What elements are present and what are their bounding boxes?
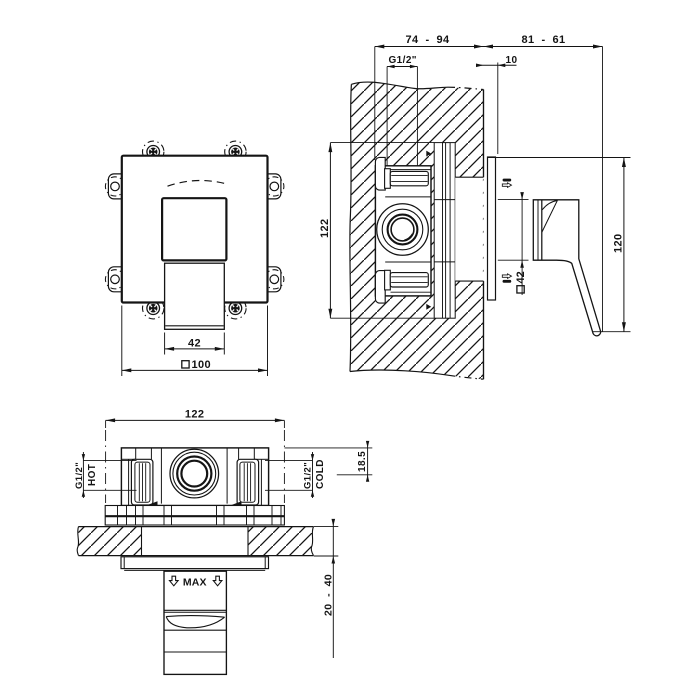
svg-text:74 - 94: 74 - 94 <box>406 34 450 46</box>
svg-text:42: 42 <box>515 271 527 283</box>
svg-text:COLD: COLD <box>315 459 326 489</box>
svg-text:122: 122 <box>185 408 205 420</box>
svg-text:G1/2": G1/2" <box>303 462 314 489</box>
svg-text:81 - 61: 81 - 61 <box>522 34 566 46</box>
svg-text:G1/2": G1/2" <box>389 55 417 66</box>
svg-text:42: 42 <box>188 337 201 349</box>
svg-text:18.5: 18.5 <box>357 451 368 472</box>
svg-text:100: 100 <box>192 359 212 371</box>
svg-text:20 - 40: 20 - 40 <box>323 574 335 616</box>
svg-text:10: 10 <box>506 55 518 66</box>
svg-text:MAX: MAX <box>183 576 207 588</box>
svg-text:G1/2": G1/2" <box>74 462 85 489</box>
svg-text:120: 120 <box>612 233 624 253</box>
svg-text:HOT: HOT <box>87 464 98 486</box>
svg-text:122: 122 <box>319 218 331 238</box>
